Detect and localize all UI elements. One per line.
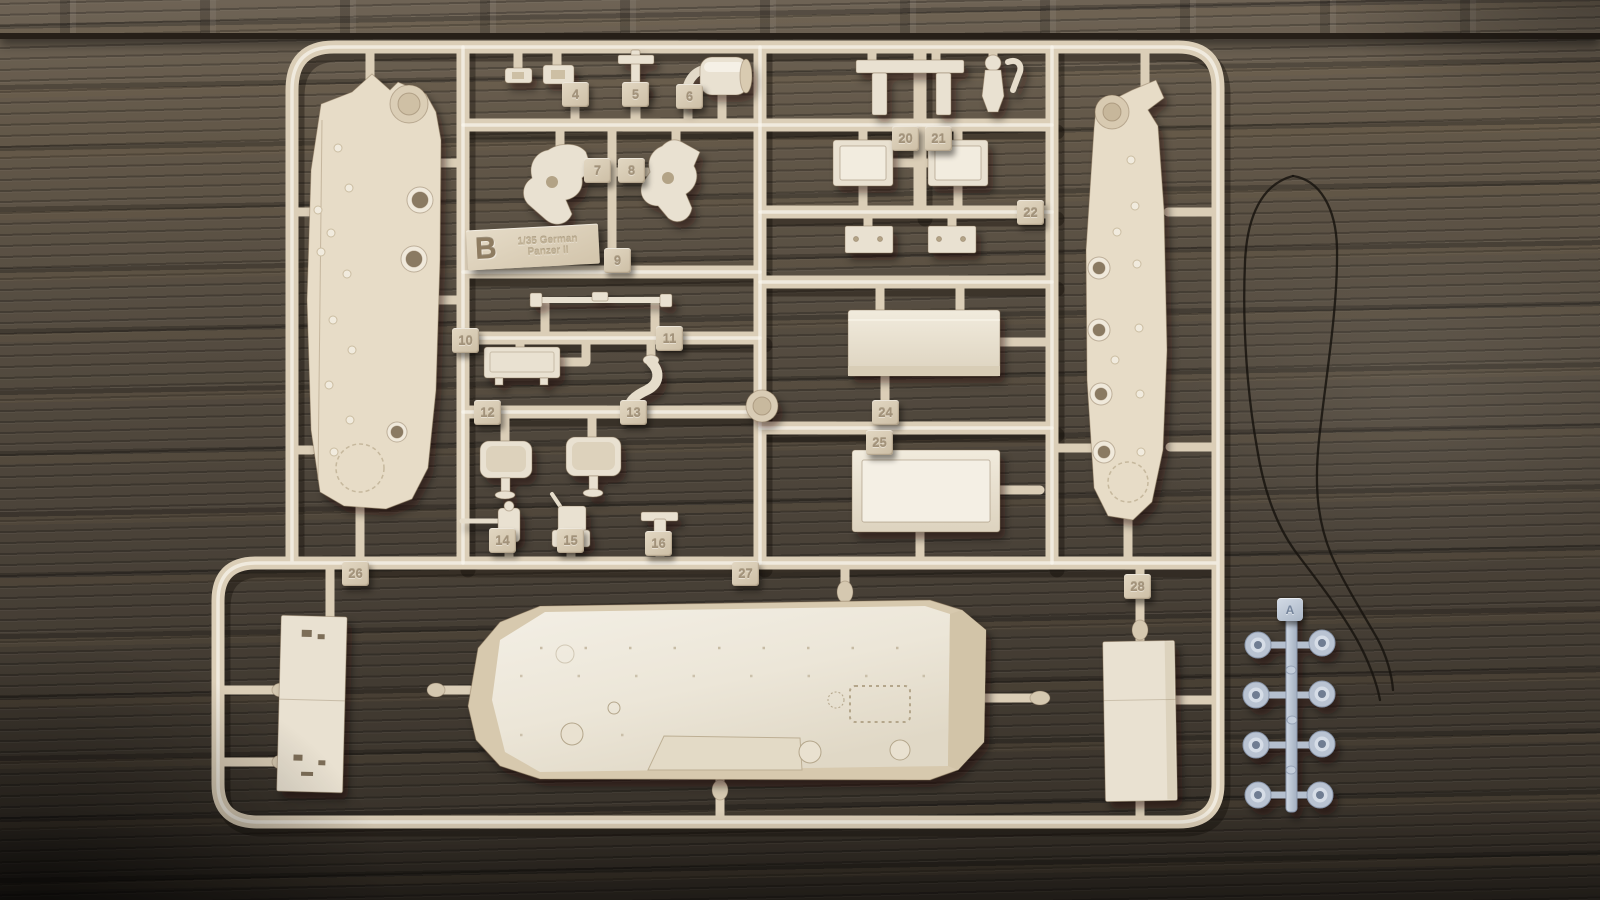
sprue-letter-tab: B 1/35 German Panzer II bbox=[466, 224, 600, 271]
part-number-tab: 6 bbox=[676, 84, 703, 109]
part-number-tab: 13 bbox=[620, 400, 647, 425]
part-number-tab: 27 bbox=[732, 561, 759, 586]
right-top-parts bbox=[856, 55, 1020, 115]
seat-parts bbox=[480, 437, 621, 499]
part-number-tab: 20 bbox=[892, 126, 919, 151]
part-number-tab: 12 bbox=[474, 400, 501, 425]
part-number-tab: 21 bbox=[925, 126, 952, 151]
right-plate-part bbox=[1103, 640, 1178, 801]
part-number-tab: 4 bbox=[562, 82, 589, 107]
part-number-tab: 15 bbox=[557, 528, 584, 553]
part-number-tab: 10 bbox=[452, 328, 479, 353]
part-number-tab: 11 bbox=[656, 326, 683, 351]
model-kit-photo: B 1/35 German Panzer II A 4 5 6 7 8 9 10… bbox=[0, 0, 1600, 900]
part-number-tab: 24 bbox=[872, 400, 899, 425]
part-number-tab: 28 bbox=[1124, 574, 1151, 599]
hull-roof-part bbox=[468, 600, 986, 780]
black-thread bbox=[1244, 176, 1393, 700]
part-number-tab: 22 bbox=[1017, 200, 1044, 225]
part-number-tab: 25 bbox=[866, 430, 893, 455]
sprue-scene bbox=[0, 0, 1600, 900]
right-fender-part bbox=[1086, 80, 1167, 520]
hatch-parts bbox=[833, 140, 988, 253]
part-number-tab: 9 bbox=[604, 248, 631, 273]
clear-parts-sprue bbox=[1243, 608, 1335, 812]
part-number-tab: 7 bbox=[584, 158, 611, 183]
sprue-mold-text: 1/35 German Panzer II bbox=[504, 233, 591, 259]
sprue-letter: B bbox=[474, 234, 497, 265]
clear-sprue-letter-tab: A bbox=[1277, 598, 1303, 621]
storage-box-parts bbox=[848, 310, 1000, 532]
left-plate-part bbox=[277, 615, 348, 793]
left-fender-part bbox=[307, 74, 441, 509]
part-number-tab: 16 bbox=[645, 531, 672, 556]
part-number-tab: 26 bbox=[342, 561, 369, 586]
part-number-tab: 5 bbox=[622, 82, 649, 107]
part-number-tab: 8 bbox=[618, 158, 645, 183]
part-number-tab: 14 bbox=[489, 528, 516, 553]
